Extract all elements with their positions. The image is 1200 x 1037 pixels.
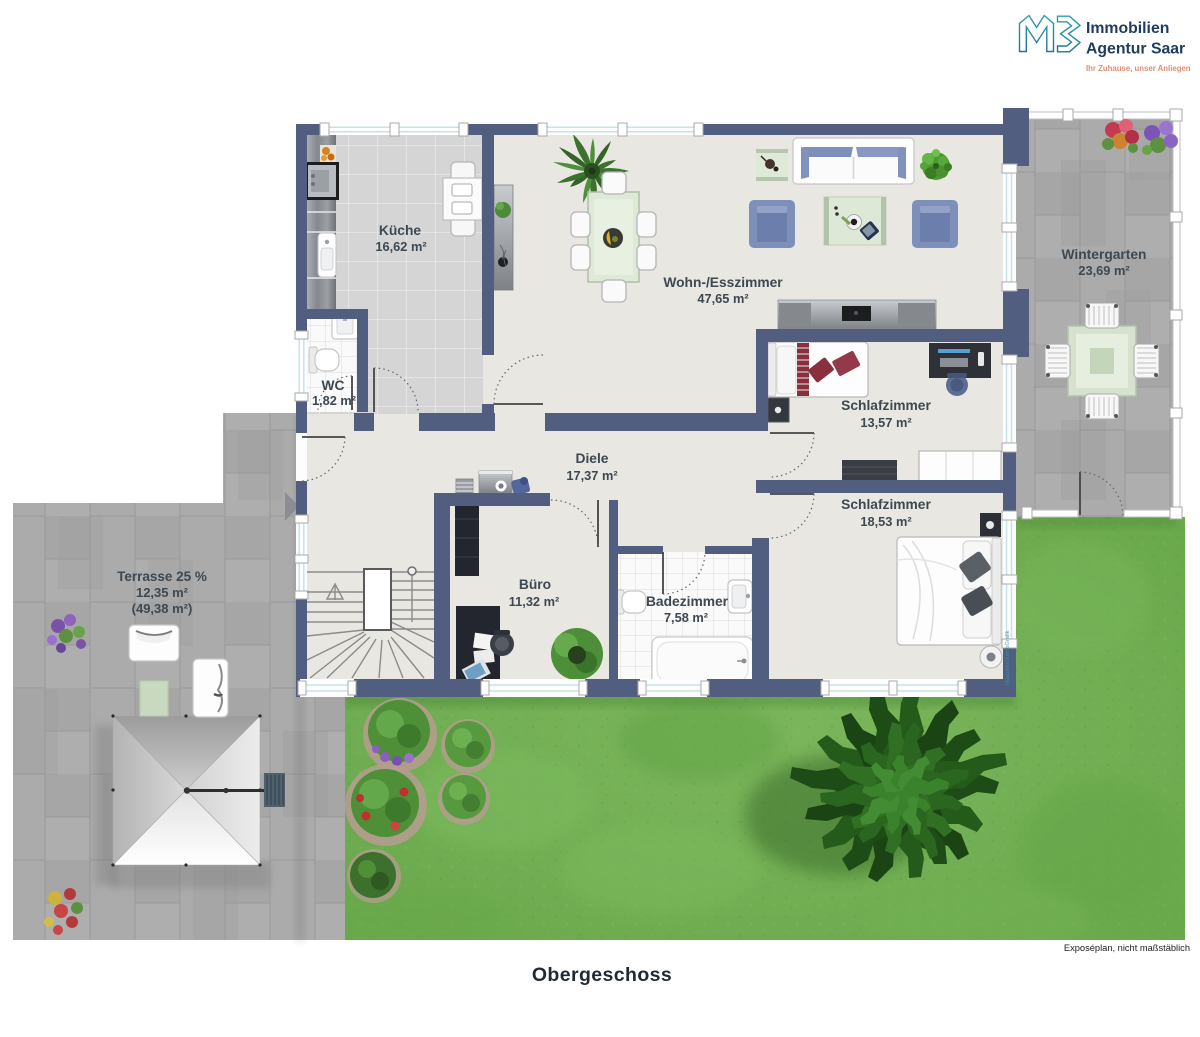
svg-text:12,35 m²: 12,35 m² (136, 585, 189, 600)
svg-text:47,65 m²: 47,65 m² (697, 291, 748, 306)
svg-text:Immobilien: Immobilien (1086, 20, 1169, 37)
svg-text:Küche: Küche (379, 223, 421, 238)
svg-text:16,62 m²: 16,62 m² (375, 239, 426, 254)
svg-text:17,37 m²: 17,37 m² (566, 468, 617, 483)
svg-text:(49,38 m²): (49,38 m²) (132, 601, 193, 616)
svg-text:Wintergarten: Wintergarten (1062, 247, 1147, 262)
svg-text:7,58 m²: 7,58 m² (664, 610, 708, 625)
svg-text:Badezimmer: Badezimmer (646, 594, 729, 609)
svg-text:Diele: Diele (576, 451, 609, 466)
svg-text:18,53 m²: 18,53 m² (860, 514, 911, 529)
svg-text:Agentur Saar: Agentur Saar (1086, 41, 1185, 58)
svg-text:Terrasse 25 %: Terrasse 25 % (117, 569, 207, 584)
svg-text:Wohn-/Esszimmer: Wohn-/Esszimmer (663, 275, 783, 290)
svg-text:Obergeschoss: Obergeschoss (532, 964, 672, 986)
svg-text:Büro: Büro (519, 577, 551, 592)
svg-text:Ihr Zuhause, unser Anliegen: Ihr Zuhause, unser Anliegen (1086, 64, 1191, 73)
svg-text:1,82 m²: 1,82 m² (312, 393, 356, 408)
svg-text:13,57 m²: 13,57 m² (860, 415, 911, 430)
svg-text:23,69 m²: 23,69 m² (1078, 263, 1129, 278)
svg-text:IllustrationImmoGrafik: IllustrationImmoGrafik (1005, 630, 1011, 685)
svg-text:WC: WC (322, 378, 345, 393)
svg-text:Exposéplan, nicht maßstäblich: Exposéplan, nicht maßstäblich (1064, 943, 1190, 953)
svg-text:Schlafzimmer: Schlafzimmer (841, 497, 931, 512)
svg-text:11,32 m²: 11,32 m² (509, 594, 560, 609)
svg-text:Schlafzimmer: Schlafzimmer (841, 398, 931, 413)
